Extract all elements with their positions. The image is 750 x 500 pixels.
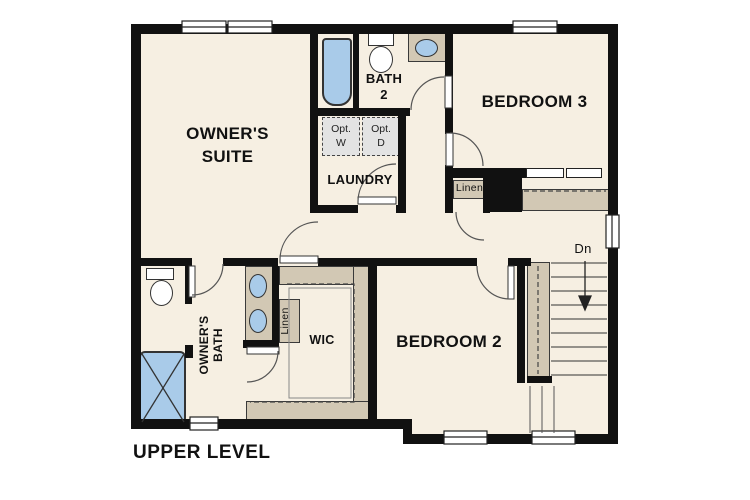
owners-bath-toilet-tank	[146, 268, 174, 280]
laundry-label: LAUNDRY	[318, 172, 402, 187]
wall-exterior-left	[131, 24, 141, 429]
linen-hall-label: Linen	[453, 182, 486, 194]
stairs-down-label: Dn	[568, 241, 598, 256]
bedroom3-label: BEDROOM 3	[452, 92, 617, 112]
wall-bedroom2-stairs	[517, 258, 525, 383]
stair-railing	[527, 262, 550, 379]
owners-bath-label: OWNER'S BATH	[197, 300, 227, 390]
optional-dryer-box: Opt. D	[362, 117, 400, 156]
wic-shelf-bottom	[246, 401, 371, 420]
wall-hall-south-3	[318, 258, 477, 266]
wall-hall-south-1	[141, 258, 192, 266]
wall-rail-cap	[527, 376, 552, 383]
bedroom2-label: BEDROOM 2	[368, 332, 530, 352]
bath2-toilet-bowl	[369, 46, 393, 73]
optional-washer-label: Opt. W	[331, 123, 351, 149]
wall-exterior-top	[131, 24, 618, 34]
shower	[139, 351, 186, 424]
wall-under-vanity	[243, 340, 279, 348]
wall-laundry-south-left	[310, 205, 358, 213]
stair-knee-wall-1	[526, 168, 564, 178]
wall-laundry-south-right	[396, 205, 406, 213]
wall-linen-west	[445, 177, 453, 213]
wall-toilet-compartment	[185, 266, 192, 304]
floor-plan: Opt. W Opt. D	[0, 0, 750, 500]
bath2-sink	[415, 39, 438, 57]
wall-exterior-bottom-left	[131, 419, 412, 429]
wall-suite-laundry	[310, 24, 318, 212]
wall-exterior-bottom-right	[403, 434, 618, 444]
wall-shower-stub	[185, 345, 193, 358]
wall-stair-block	[490, 168, 522, 212]
linen-bath-label: Linen	[279, 300, 299, 342]
owners-bath-sink-2	[249, 309, 267, 333]
wic-shelf-top	[279, 266, 357, 285]
optional-washer-box: Opt. W	[322, 117, 360, 156]
optional-dryer-label: Opt. D	[371, 123, 391, 149]
bathtub	[322, 38, 352, 106]
wic-label: WIC	[298, 333, 346, 347]
wall-vanity-east	[272, 266, 279, 347]
owners-suite-label: OWNER'S SUITE	[150, 123, 305, 169]
wall-bath2-laundry	[318, 108, 410, 116]
wall-bath2-bedroom3-upper	[445, 24, 453, 134]
stair-knee-wall-2	[566, 168, 602, 178]
owners-bath-toilet-bowl	[150, 280, 173, 306]
wall-exterior-right	[608, 24, 618, 444]
bath2-toilet-tank	[368, 33, 394, 46]
stair-top-shelf	[522, 189, 609, 211]
bath2-label: BATH 2	[352, 71, 416, 102]
wall-hall-south-2	[223, 258, 278, 266]
wall-laundry-east	[398, 116, 406, 212]
owners-bath-sink-1	[249, 274, 267, 298]
plan-title: UPPER LEVEL	[133, 442, 333, 464]
